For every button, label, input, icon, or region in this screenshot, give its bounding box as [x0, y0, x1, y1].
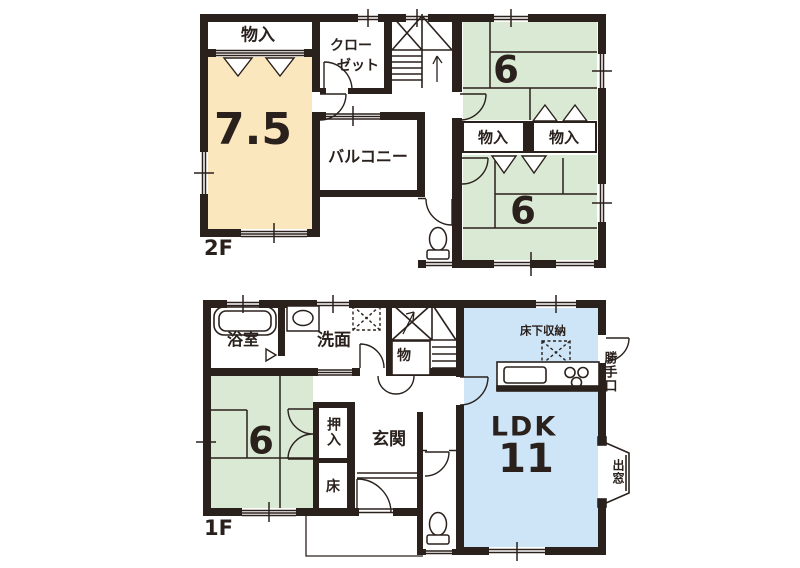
room-label-entrance: 玄関	[372, 432, 406, 449]
window-symbol	[242, 508, 296, 516]
wall	[598, 14, 606, 268]
room-label-storage-b: 物入	[549, 131, 579, 146]
window-symbol	[598, 54, 606, 88]
wall	[320, 88, 326, 94]
wall	[456, 300, 464, 377]
window-symbol	[426, 549, 452, 555]
wall	[312, 112, 326, 120]
window-symbol	[227, 300, 259, 308]
stairs-1f	[392, 302, 456, 375]
entrance-porch-line	[306, 516, 423, 556]
wall	[200, 14, 208, 237]
floor-label-1f: 1F	[204, 518, 233, 539]
room-label-storage-a: 物入	[478, 131, 508, 146]
room-label-backdoor: 勝手口	[603, 351, 616, 393]
wall	[386, 368, 460, 376]
wall	[313, 458, 355, 463]
wall	[417, 112, 425, 197]
room-6-upper-fill	[463, 22, 597, 120]
wall	[452, 14, 462, 92]
wall	[386, 300, 392, 368]
wall	[352, 368, 360, 376]
window-symbol	[200, 152, 208, 194]
wall	[525, 121, 532, 153]
room-label-washroom: 洗面	[317, 333, 351, 350]
floorplan-canvas: 物入 クロー ゼット 7.5 バルコニー 6 物入 物入 6 2F 浴室 洗面 …	[0, 0, 800, 568]
window-symbol	[489, 547, 545, 555]
plan-linework	[0, 0, 800, 568]
washing-machine-icon	[353, 306, 380, 330]
toilet-icon-1f	[427, 513, 449, 545]
room-label-bathroom: 浴室	[227, 332, 259, 348]
wall	[208, 49, 216, 57]
window-symbol	[241, 229, 307, 237]
room-size-6-1f: 6	[248, 423, 274, 460]
sink-icon	[287, 306, 319, 331]
room-label-underfloor: 床下収納	[520, 325, 566, 337]
wall	[312, 190, 425, 197]
bath-folding-door-icon	[266, 349, 276, 361]
room-label-closet: クロー	[330, 39, 372, 53]
stairs-2f	[392, 14, 452, 88]
wall	[384, 14, 392, 94]
wall	[598, 300, 606, 335]
wall	[348, 88, 384, 94]
room-label-closet2: ゼット	[337, 59, 379, 73]
window-symbol	[317, 300, 349, 308]
wall	[598, 503, 606, 555]
wall	[200, 14, 606, 22]
bay-window-gap	[598, 442, 606, 503]
wall	[417, 412, 423, 549]
wall	[313, 508, 359, 516]
window-symbol	[406, 14, 428, 22]
room-label-mono: 物	[397, 349, 411, 363]
room-size-6-lower: 6	[510, 193, 536, 230]
window-symbol	[426, 260, 452, 268]
room-size-ldk: 11	[498, 439, 554, 479]
wall	[203, 300, 211, 516]
wall	[278, 300, 285, 356]
window-symbol	[598, 184, 606, 222]
window-symbol	[494, 14, 528, 22]
room-size-75: 7.5	[214, 108, 292, 152]
wall	[203, 368, 318, 376]
window-symbol	[494, 260, 530, 268]
wall	[312, 118, 320, 237]
room-size-6-upper: 6	[493, 52, 519, 89]
wall	[452, 118, 462, 260]
room-label-storage-top: 物入	[241, 28, 275, 45]
room-label-baywindow: 出窓	[612, 459, 624, 485]
room-label-oshiire: 押入	[326, 417, 340, 447]
window-symbol	[536, 300, 576, 308]
window-symbol	[358, 14, 378, 22]
wall	[312, 14, 320, 92]
room-label-tokonoma: 床	[326, 480, 340, 494]
wall	[304, 49, 312, 57]
room-label-balcony: バルコニー	[328, 149, 408, 165]
toilet-icon-2f	[427, 228, 449, 260]
floor-label-2f: 2F	[204, 238, 233, 259]
wall	[456, 405, 464, 547]
window-symbol	[556, 260, 594, 268]
